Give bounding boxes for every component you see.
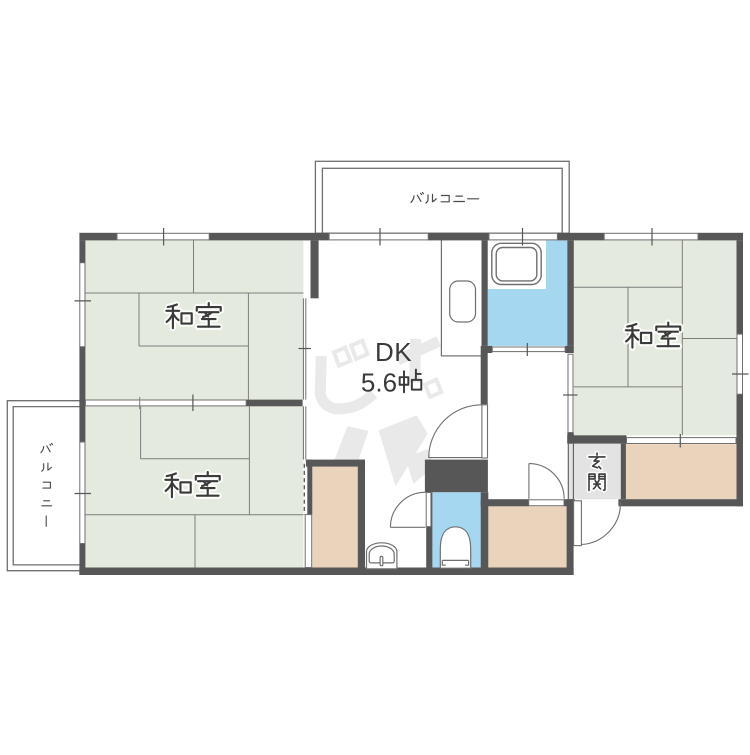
svg-text:5.6: 5.6 [361,368,397,398]
svg-text:DK: DK [375,337,412,367]
